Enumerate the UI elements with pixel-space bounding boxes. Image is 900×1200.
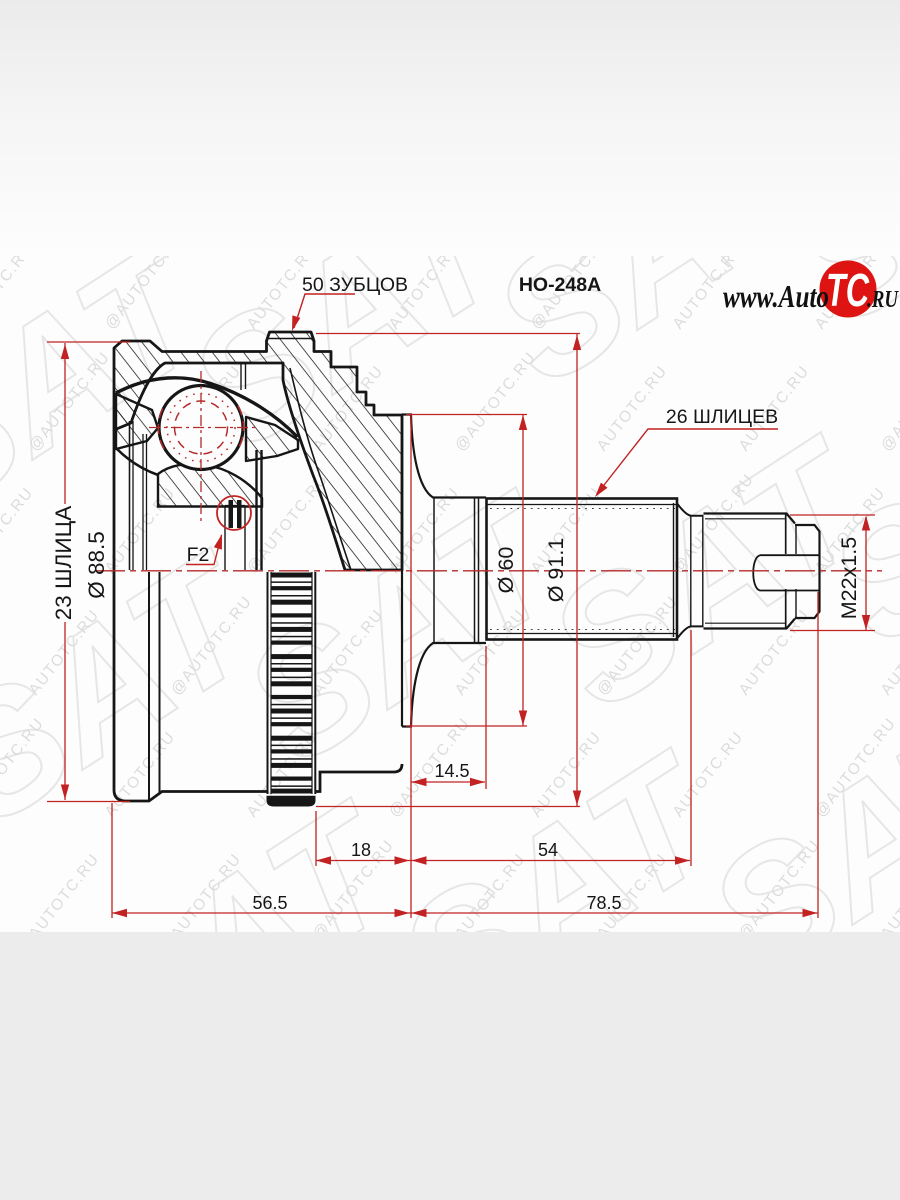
svg-text:78.5: 78.5 [586, 893, 621, 913]
svg-text:SAT: SAT [677, 672, 900, 1016]
svg-text:@AUTOTC.RU: @AUTOTC.RU [452, 349, 540, 455]
svg-text:AUTOTC.RU: AUTOTC.RU [670, 728, 747, 820]
svg-text:.RU: .RU [867, 287, 899, 313]
svg-text:HO-248A: HO-248A [519, 274, 601, 296]
svg-text:56.5: 56.5 [252, 893, 287, 913]
svg-text:18: 18 [351, 840, 371, 860]
svg-text:Ø 60: Ø 60 [494, 547, 518, 594]
svg-text:26 ШЛИЦЕВ: 26 ШЛИЦЕВ [666, 406, 778, 428]
svg-text:M22x1.5: M22x1.5 [837, 537, 861, 620]
svg-text:23 ШЛИЦА: 23 ШЛИЦА [51, 506, 76, 621]
svg-text:50 ЗУБЦОВ: 50 ЗУБЦОВ [302, 274, 408, 296]
svg-text:14.5: 14.5 [434, 761, 469, 781]
svg-text:SAT: SAT [212, 457, 600, 801]
svg-text:www.Auto: www.Auto [723, 278, 829, 314]
svg-text:TC: TC [826, 264, 870, 316]
svg-text:SAT: SAT [47, 767, 435, 1111]
svg-text:@AUTOTC.RU: @AUTOTC.RU [878, 349, 900, 455]
svg-text:Ø 91.1: Ø 91.1 [544, 538, 568, 603]
svg-text:F2: F2 [187, 544, 210, 566]
svg-text:Ø 88.5: Ø 88.5 [84, 531, 109, 599]
svg-text:54: 54 [538, 840, 558, 860]
